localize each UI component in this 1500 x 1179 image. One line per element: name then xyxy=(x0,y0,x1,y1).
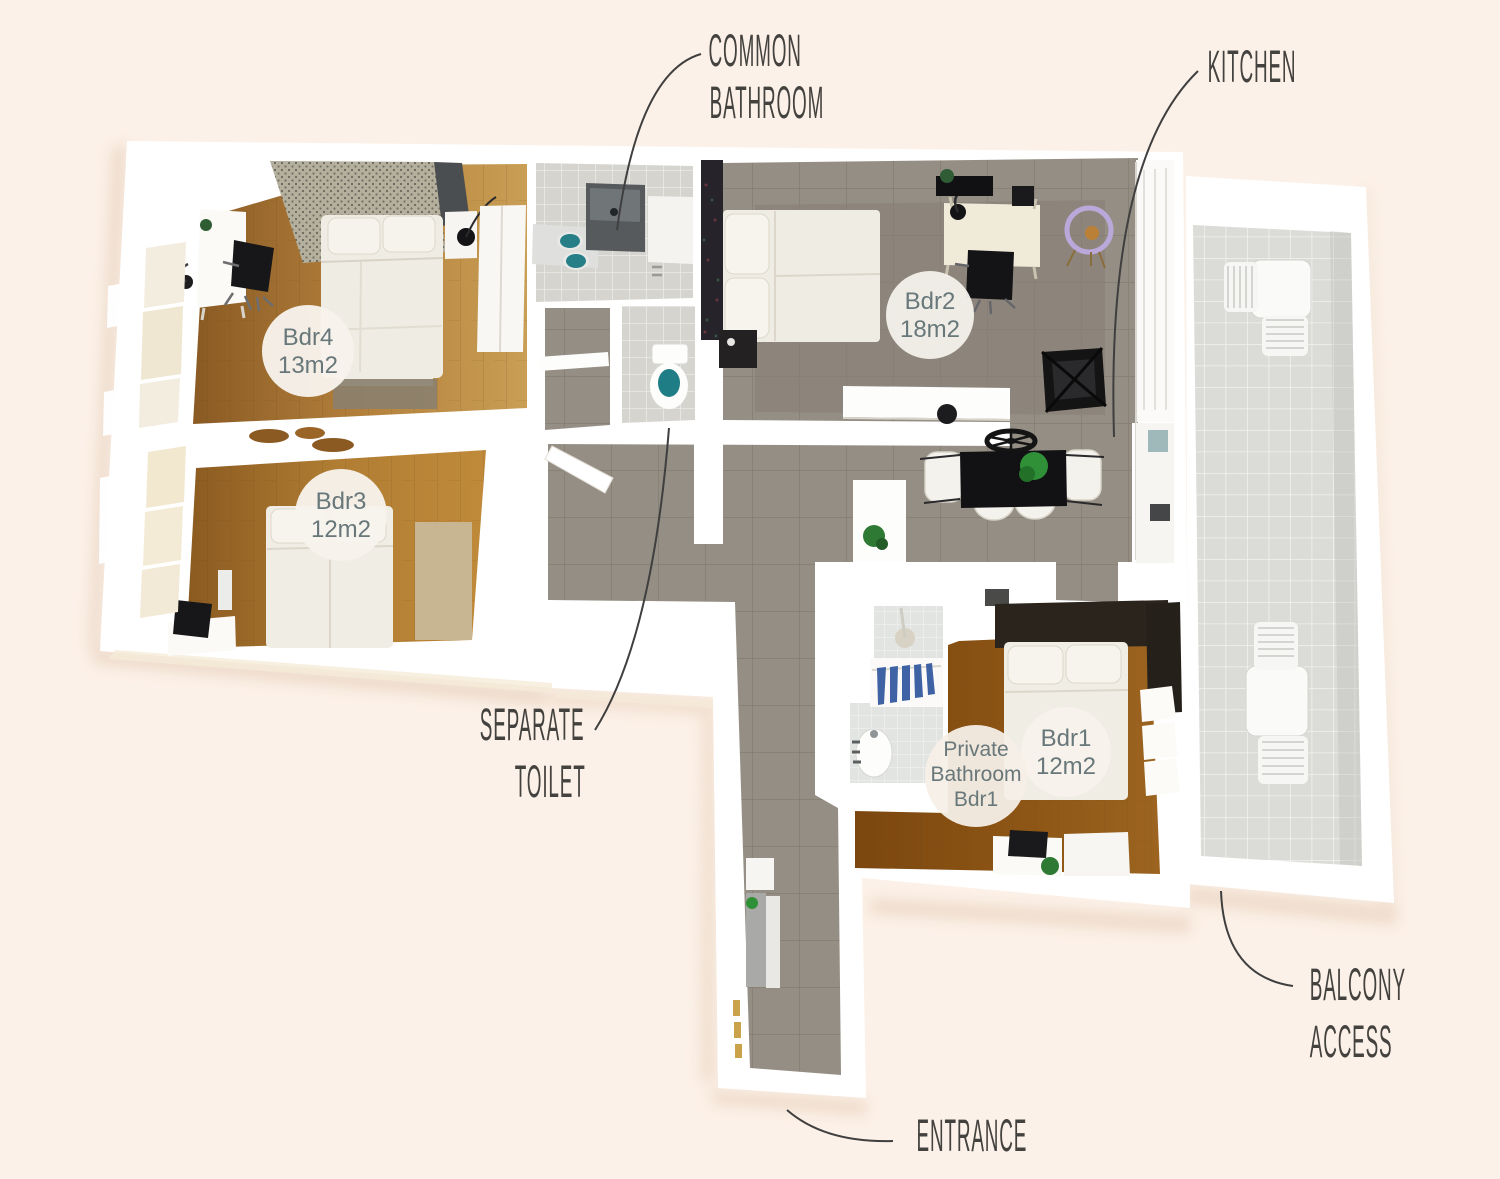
svg-text:13m2: 13m2 xyxy=(278,352,338,379)
svg-text:ACCESS: ACCESS xyxy=(1310,1018,1393,1068)
svg-text:Bdr1: Bdr1 xyxy=(954,788,998,811)
svg-text:BATHROOM: BATHROOM xyxy=(710,79,824,129)
svg-text:Bdr3: Bdr3 xyxy=(316,488,367,515)
svg-text:Bathroom: Bathroom xyxy=(930,763,1021,786)
svg-text:BALCONY: BALCONY xyxy=(1310,961,1406,1011)
svg-text:SEPARATE: SEPARATE xyxy=(480,701,585,751)
svg-text:KITCHEN: KITCHEN xyxy=(1208,43,1297,93)
svg-text:COMMON: COMMON xyxy=(709,27,802,77)
svg-text:ENTRANCE: ENTRANCE xyxy=(917,1112,1028,1162)
svg-text:Bdr1: Bdr1 xyxy=(1041,725,1092,752)
svg-text:18m2: 18m2 xyxy=(900,316,960,343)
svg-text:Private: Private xyxy=(943,738,1008,761)
svg-text:12m2: 12m2 xyxy=(1036,753,1096,780)
svg-text:TOILET: TOILET xyxy=(515,758,586,808)
svg-text:Bdr4: Bdr4 xyxy=(283,324,334,351)
svg-text:12m2: 12m2 xyxy=(311,516,371,543)
svg-text:Bdr2: Bdr2 xyxy=(905,288,956,315)
